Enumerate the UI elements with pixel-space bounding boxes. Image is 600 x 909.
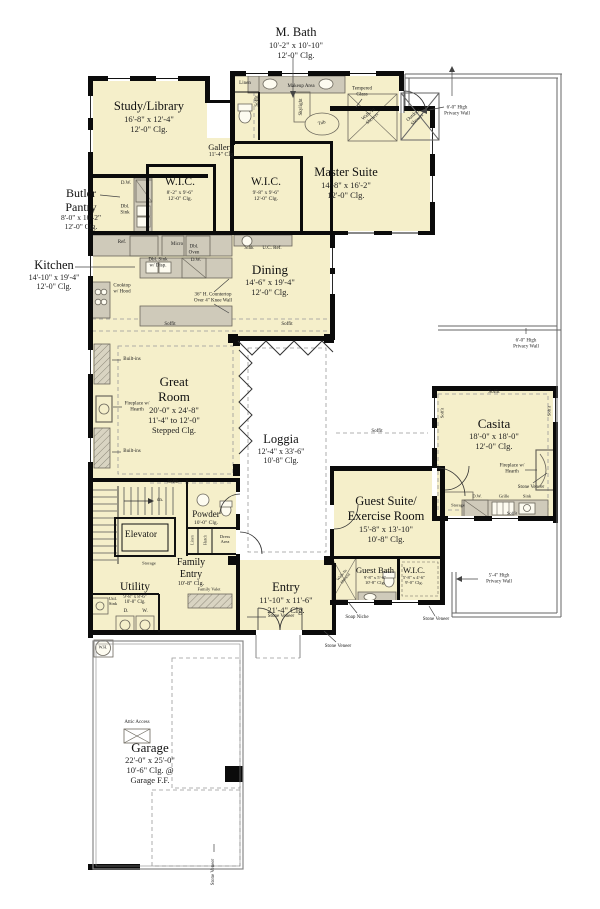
room-name: W.I.C. [403,565,425,575]
room-ceiling: 10'-8" Clg. [258,456,305,465]
room-name: Family Entry [177,557,205,581]
label-dryer: D. [124,609,129,615]
room-ceiling: 12'-0" Clg. [114,124,184,134]
label-privacy-wall-top: 6'-0" High Privacy Wall [444,105,470,117]
room-label-dining: Dining 14'-6" x 19'-4" 12'-0" Clg. [245,262,295,297]
room-name: Powder [192,509,220,520]
label-linen-mbath: Linen [239,81,251,87]
room-name: Loggia [258,432,305,447]
label-grille: Grille [499,493,510,498]
label-soffit-casita-bottom: Soffit [507,510,517,515]
label-dw-casita: D.W. [472,493,481,498]
room-name: Dining [245,262,295,277]
label-util-sink: Util. Sink [109,596,117,606]
room-name: Utility [120,581,150,595]
label-countertop-note: 36" H. Countertop Over 4" Knee Wall [194,292,232,304]
label-built-ins-upper: Built-ins [123,357,141,363]
room-ceiling: 11'-4" Clg [208,152,234,159]
label-tempered-glass: Tempered Glass [352,86,372,98]
label-soffit-mbath: Soffit [255,95,261,106]
room-label-powder: Powder 10'-0" Clg. [192,509,220,526]
room-label-gallery: Gallery 11'-4" Clg [208,142,234,159]
room-dims: 14'-6" x 19'-4" [245,277,295,287]
label-skylight: Skylight [299,99,305,116]
label-stone-veneer-guest: Stone Veneer [423,617,449,623]
label-dw-pantry: D.W. [121,181,131,187]
room-ceiling: 10'-8" Clg. [120,600,150,606]
room-dims: 12'-4" x 33'-6" [258,447,305,456]
label-stone-veneer-entry: Stone Veneer [268,614,294,620]
label-fireplace-great-room: Fireplace w/ Hearth [125,401,150,413]
room-label-kitchen: Kitchen 14'-10" x 19'-4" 12'-0" Clg. [29,258,80,292]
room-label-loggia: Loggia 12'-4" x 33'-6" 10'-8" Clg. [258,432,305,466]
room-dims: 14'-10" x 19'-4" [29,273,80,282]
label-dbl-oven: Dbl. Oven [189,244,200,256]
room-fill-areas [92,71,556,635]
room-ceiling: 12'-0" Clg. [245,287,295,297]
label-attic-access: Attic Access [124,720,149,726]
room-ceiling: 10'-8" Clg. [348,534,425,544]
label-family-valet: Family Valet [197,586,220,591]
room-ceiling: 12'-0" Clg. [29,282,80,291]
label-sink-casita: Sink [523,493,531,498]
label-uc-ref: U.C. Ref. [262,246,281,252]
label-privacy-wall-54: 5'-4" High Privacy Wall [486,573,512,585]
room-dims: 10'-2" x 10'-10" [269,40,323,50]
room-name: Kitchen [29,258,80,273]
label-soffit-casita-right: Soffit [546,406,551,416]
room-dims: 11'-10" x 11'-6" [259,595,312,605]
room-ceiling: 9'-0" Clg. [403,580,425,585]
room-ceiling: 10'-0" Clg. [192,520,220,526]
room-label-wic-1: W.I.C. 8'-2" x 9'-6" 12'-0" Clg. [165,176,195,203]
room-ceiling: 11'-4" to 12'-0" Stepped Clg. [148,415,200,435]
room-name: Guest Bath [356,565,394,575]
room-name: Great Room [148,374,200,405]
label-sink-bar: Sink [244,246,253,252]
label-cooktop: Cooktop w/ Hood [113,283,130,295]
room-label-garage: Garage 22'-0" x 25'-0" 10'-6" Clg. @ Gar… [125,740,175,785]
room-label-study-library: Study/Library 16'-8" x 12'-4" 12'-0" Clg… [114,99,184,134]
room-label-guest-bath: Guest Bath 9'-8" x 5'-6" 10'-8" Clg. [356,565,394,586]
room-label-wic-2: W.I.C. 9'-8" x 9'-6" 12'-0" Clg. [251,176,281,203]
label-soffit-kitchen: Soffit [164,322,175,328]
label-built-ins-lower: Built-ins [123,449,141,455]
label-soffit-hall: Soffit [167,480,178,486]
room-ceiling: 10'-6" Clg. @ Garage F.F. [125,765,175,785]
room-name: M. Bath [269,25,323,40]
floor-plan: M. Bath 10'-2" x 10'-10" 12'-0" Clg. Stu… [0,0,600,909]
room-label-great-room: Great Room 20'-0" x 24'-8" 11'-4" to 12'… [148,374,200,435]
label-soffit-casita-top: Soffit [488,390,499,396]
label-washer: W. [142,609,148,615]
label-soffit-casita-left: Soffit [439,408,444,418]
room-ceiling: 12'-0" Clg. [314,190,378,200]
room-ceiling: 12'-0" Clg. [251,196,281,202]
room-label-entry: Entry 11'-10" x 11'-6" 21'-4" Clg. [259,580,312,615]
label-stone-veneer-bottom: Stone Veneer [211,859,217,885]
label-stone-veneer-casita: Stone Veneer [518,485,544,491]
label-ref: Ref. [118,240,126,246]
room-label-casita: Casita 18'-0" x 18'-0" 12'-0" Clg. [469,416,519,451]
room-dims: 22'-0" x 25'-0" [125,755,175,765]
room-name: Elevator [125,530,157,541]
label-privacy-wall-mid: 6'-0" High Privacy Wall [513,338,539,350]
label-fireplace-casita: Fireplace w/ Hearth [500,463,525,475]
room-name: Garage [125,740,175,755]
room-ceiling: 12'-0" Clg. [165,196,195,202]
room-label-family-entry: Family Entry 10'-8" Clg. [177,557,205,588]
room-label-m-bath: M. Bath 10'-2" x 10'-10" 12'-0" Clg. [269,25,323,60]
room-ceiling: 10'-8" Clg. [356,580,394,585]
room-name: W.I.C. [251,176,281,190]
room-name: Gallery [208,142,234,152]
room-name: Butler Pantry [61,186,101,214]
room-name: Study/Library [114,99,184,114]
room-name: Casita [469,416,519,431]
label-water-heater: W.H. [99,646,108,651]
label-soap-niche: Soap Niche [345,615,368,621]
label-dw-kitchen-island: D.W. [191,258,201,264]
room-dims: 16'-8" x 12'-4" [114,114,184,124]
label-linen-closet: Linen [191,535,196,545]
room-label-guest-suite: Guest Suite/ Exercise Room 15'-8" x 13'-… [348,494,425,544]
room-ceiling: 12'-0" Clg. [61,223,101,232]
label-storage-courtyard: Storage [451,502,465,507]
label-makeup-area: Makeup Area [287,84,314,90]
room-dims: 20'-0" x 24'-8" [148,405,200,415]
room-dims: 18'-0" x 18'-0" [469,431,519,441]
room-label-butler-pantry: Butler Pantry 8'-0" x 10'-2" 12'-0" Clg. [61,186,101,232]
label-micro: Micro [171,242,183,248]
room-name: W.I.C. [165,176,195,190]
label-dbl-sink-pantry: Dbl. Sink [120,204,129,216]
label-hutch: Hutch [204,535,209,545]
room-dims: 15'-8" x 13'-10" [348,524,425,534]
label-soffit-courtyard: Soffit [371,429,382,435]
room-name: Entry [259,580,312,595]
room-label-elevator: Elevator [125,530,157,541]
room-ceiling: 12'-0" Clg. [269,50,323,60]
label-stairs-direction: dn. [157,498,163,504]
room-name: Master Suite [314,165,378,180]
label-dress-area: Dress Area [220,534,230,544]
room-name: Guest Suite/ Exercise Room [348,494,425,524]
room-dims: 14'-8" x 16'-2" [314,180,378,190]
label-stone-veneer-mid: Stone Veneer [325,644,351,650]
room-label-guest-wic: W.I.C. 5'-8" x 4'-6" 9'-0" Clg. [403,565,425,586]
room-ceiling: 12'-0" Clg. [469,441,519,451]
label-storage-elevator: Storage [142,560,156,565]
room-label-master-suite: Master Suite 14'-8" x 16'-2" 12'-0" Clg. [314,165,378,200]
label-dbl-sink-disp: Dbl. Sink w/ Disp. [148,257,167,269]
room-label-utility: Utility 9'-8" x 8'-6" 10'-8" Clg. [120,581,150,606]
label-soffit-dining: Soffit [281,322,292,328]
